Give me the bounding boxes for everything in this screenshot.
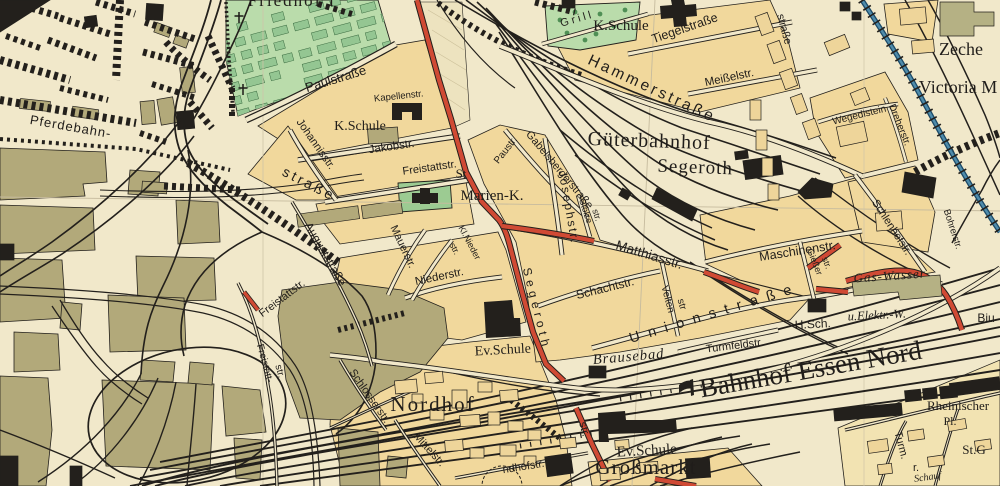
svg-text:Biu: Biu	[977, 311, 994, 325]
svg-text:Friedhof I: Friedhof I	[248, 0, 336, 10]
svg-text:K.Schule: K.Schule	[334, 119, 386, 134]
svg-text:Victoria M: Victoria M	[919, 77, 997, 97]
svg-text:Zeche: Zeche	[939, 39, 983, 59]
svg-text:Ev.Schule: Ev.Schule	[474, 342, 531, 360]
svg-text:St: St	[456, 166, 467, 181]
svg-text:Marien-K.: Marien-K.	[461, 188, 524, 204]
svg-text:r.: r.	[913, 462, 919, 474]
svg-text:Segeroth: Segeroth	[657, 156, 733, 180]
svg-text:St.G: St.G	[962, 442, 985, 457]
svg-text:H.Sch.: H.Sch.	[794, 316, 831, 332]
svg-text:Nordhof: Nordhof	[390, 392, 475, 416]
svg-text:Güterbahnhof: Güterbahnhof	[587, 128, 711, 154]
svg-text:K.Schule: K.Schule	[593, 18, 649, 34]
svg-text:Rheinischer: Rheinischer	[927, 398, 990, 413]
svg-text:Ev.Schule: Ev.Schule	[616, 441, 677, 460]
svg-text:Pl.: Pl.	[943, 414, 956, 428]
